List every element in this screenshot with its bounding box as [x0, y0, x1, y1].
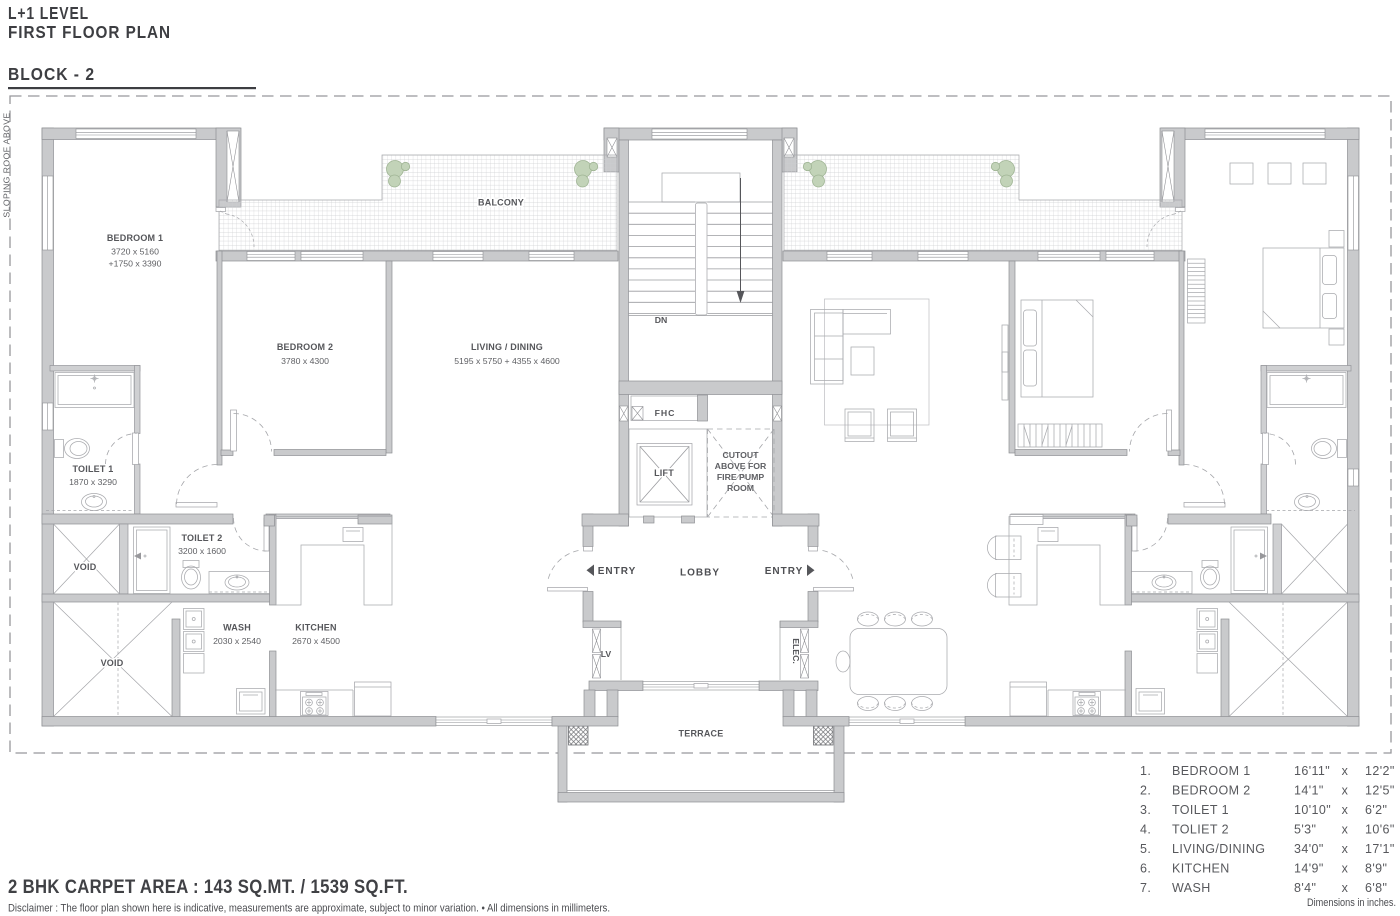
svg-text:3.: 3.: [1140, 803, 1151, 817]
svg-text:FIRE PUMP: FIRE PUMP: [717, 472, 765, 482]
svg-text:x: x: [1342, 784, 1349, 798]
svg-text:6'2": 6'2": [1365, 803, 1387, 817]
svg-text:DN: DN: [655, 315, 668, 325]
svg-text:8'4": 8'4": [1294, 881, 1316, 895]
svg-text:10'6": 10'6": [1365, 823, 1395, 837]
svg-text:12'5": 12'5": [1365, 784, 1395, 798]
svg-text:TERRACE: TERRACE: [679, 729, 724, 739]
svg-text:+1750 x 3390: +1750 x 3390: [109, 259, 162, 269]
svg-text:BEDROOM 2: BEDROOM 2: [1172, 784, 1251, 798]
svg-text:L+1 LEVEL: L+1 LEVEL: [8, 3, 89, 23]
svg-text:ROOM: ROOM: [727, 483, 754, 493]
svg-text:BEDROOM 1: BEDROOM 1: [1172, 764, 1251, 778]
svg-text:ENTRY: ENTRY: [598, 566, 637, 577]
svg-text:LIVING / DINING: LIVING / DINING: [471, 342, 543, 352]
svg-text:LOBBY: LOBBY: [680, 568, 720, 579]
svg-text:TOILET 1: TOILET 1: [1172, 803, 1229, 817]
svg-text:VOID: VOID: [101, 658, 124, 668]
svg-text:TOILET 1: TOILET 1: [73, 464, 114, 474]
svg-text:x: x: [1342, 842, 1349, 856]
svg-text:x: x: [1342, 862, 1349, 876]
svg-text:14'9": 14'9": [1294, 862, 1324, 876]
svg-text:BLOCK - 2: BLOCK - 2: [8, 64, 95, 84]
svg-text:ABOVE FOR: ABOVE FOR: [715, 461, 767, 471]
svg-text:ENTRY: ENTRY: [765, 566, 804, 577]
svg-text:12'2": 12'2": [1365, 764, 1395, 778]
svg-text:Dimensions in inches.: Dimensions in inches.: [1307, 897, 1396, 909]
svg-text:VOID: VOID: [74, 562, 97, 572]
svg-text:LIFT: LIFT: [654, 468, 674, 478]
svg-text:2670 x 4500: 2670 x 4500: [292, 636, 340, 646]
svg-text:x: x: [1342, 823, 1349, 837]
svg-text:10'10": 10'10": [1294, 803, 1331, 817]
svg-text:KITCHEN: KITCHEN: [295, 623, 336, 633]
svg-text:17'1": 17'1": [1365, 842, 1395, 856]
svg-text:2030 x 2540: 2030 x 2540: [213, 636, 261, 646]
svg-text:Disclaimer : The floor plan sh: Disclaimer : The floor plan shown here i…: [8, 903, 610, 915]
svg-text:1870 x 3290: 1870 x 3290: [69, 477, 117, 487]
svg-text:WASH: WASH: [1172, 881, 1211, 895]
svg-text:6.: 6.: [1140, 862, 1151, 876]
svg-text:2 BHK CARPET AREA : 143 SQ.MT.: 2 BHK CARPET AREA : 143 SQ.MT. / 1539 SQ…: [8, 876, 408, 898]
svg-text:1.: 1.: [1140, 764, 1151, 778]
svg-text:WASH: WASH: [223, 623, 251, 633]
svg-text:2.: 2.: [1140, 784, 1151, 798]
svg-text:KITCHEN: KITCHEN: [1172, 862, 1230, 876]
svg-text:TOLIET 2: TOLIET 2: [1172, 823, 1229, 837]
svg-text:x: x: [1342, 881, 1349, 895]
svg-text:LIVING/DINING: LIVING/DINING: [1172, 842, 1265, 856]
svg-text:8'9": 8'9": [1365, 862, 1387, 876]
svg-text:x: x: [1342, 764, 1349, 778]
svg-text:5.: 5.: [1140, 842, 1151, 856]
svg-text:x: x: [1342, 803, 1349, 817]
svg-text:BEDROOM 1: BEDROOM 1: [107, 233, 163, 243]
svg-text:3720 x 5160: 3720 x 5160: [111, 247, 159, 257]
svg-text:LV: LV: [601, 649, 612, 659]
svg-text:16'11": 16'11": [1294, 764, 1330, 778]
svg-text:FIRST FLOOR PLAN: FIRST FLOOR PLAN: [8, 22, 171, 42]
svg-text:3200 x 1600: 3200 x 1600: [178, 546, 226, 556]
svg-text:5195 x 5750 + 4355 x 4600: 5195 x 5750 + 4355 x 4600: [454, 356, 560, 366]
svg-text:CUTOUT: CUTOUT: [722, 450, 759, 460]
svg-text:5'3": 5'3": [1294, 823, 1316, 837]
svg-text:3780 x 4300: 3780 x 4300: [281, 356, 329, 366]
svg-text:34'0": 34'0": [1294, 842, 1324, 856]
svg-text:4.: 4.: [1140, 823, 1151, 837]
svg-text:6'8": 6'8": [1365, 881, 1387, 895]
svg-text:14'1": 14'1": [1294, 784, 1324, 798]
svg-text:FHC: FHC: [655, 408, 676, 418]
svg-text:ELEC.: ELEC.: [791, 638, 801, 664]
svg-text:TOILET 2: TOILET 2: [182, 533, 223, 543]
svg-text:BEDROOM 2: BEDROOM 2: [277, 342, 333, 352]
svg-text:7.: 7.: [1140, 881, 1151, 895]
svg-text:BALCONY: BALCONY: [478, 198, 524, 208]
